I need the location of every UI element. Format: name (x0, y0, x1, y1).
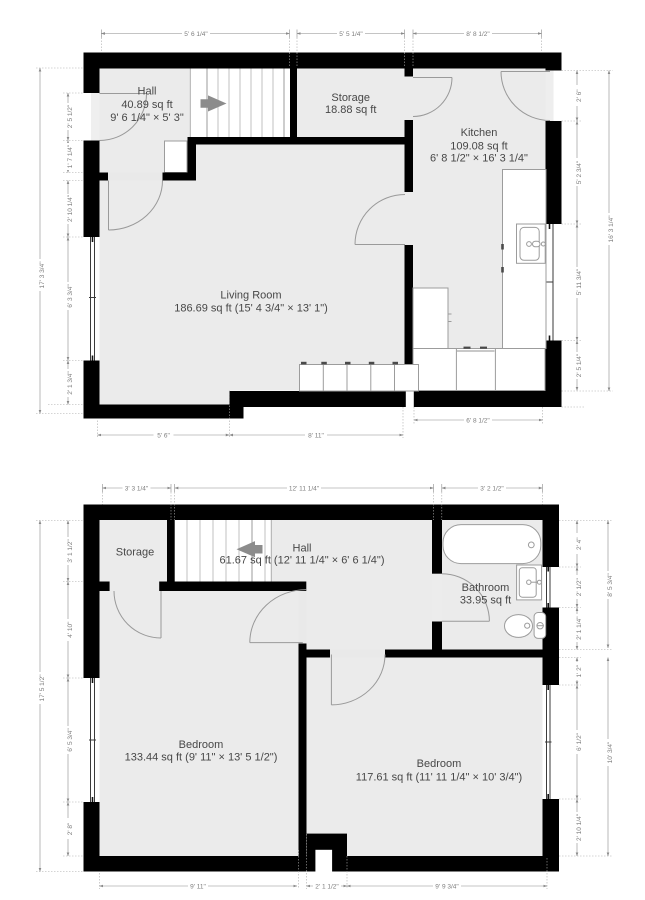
svg-text:2' 6": 2' 6" (576, 89, 583, 102)
svg-text:40.89 sq ft: 40.89 sq ft (121, 99, 172, 111)
svg-text:1' 7 1/4": 1' 7 1/4" (67, 144, 74, 168)
svg-text:Storage: Storage (116, 547, 155, 559)
svg-text:16' 3 1/4": 16' 3 1/4" (608, 215, 615, 243)
svg-text:133.44 sq ft (9' 11" × 13' 5 1: 133.44 sq ft (9' 11" × 13' 5 1/2") (125, 752, 278, 764)
svg-text:9' 11": 9' 11" (190, 884, 206, 891)
svg-text:33.95 sq ft: 33.95 sq ft (460, 594, 511, 606)
svg-text:17' 5 1/2": 17' 5 1/2" (39, 674, 46, 702)
svg-text:Kitchen: Kitchen (461, 127, 498, 139)
svg-text:Living Room: Living Room (220, 290, 281, 302)
svg-text:5' 6": 5' 6" (157, 433, 170, 440)
svg-text:Storage: Storage (331, 92, 370, 104)
svg-text:Bathroom: Bathroom (462, 582, 510, 594)
svg-text:8' 8 1/2": 8' 8 1/2" (466, 31, 490, 38)
svg-text:2' 10 1/4": 2' 10 1/4" (67, 194, 74, 222)
svg-text:6' 1/2": 6' 1/2" (576, 732, 583, 751)
svg-text:61.67 sq ft (12' 11 1/4" × 6': 61.67 sq ft (12' 11 1/4" × 6' 6 1/4") (220, 554, 385, 566)
svg-text:2' 1 1/4": 2' 1 1/4" (576, 616, 583, 640)
svg-text:12' 11 1/4": 12' 11 1/4" (289, 486, 320, 493)
svg-text:2' 10 1/4": 2' 10 1/4" (576, 813, 583, 841)
svg-text:2' 1 3/4": 2' 1 3/4" (67, 371, 74, 395)
svg-text:Bedroom: Bedroom (417, 758, 462, 770)
svg-text:6' 5 3/4": 6' 5 3/4" (67, 728, 74, 752)
svg-text:1' 2": 1' 2" (576, 664, 583, 677)
svg-text:2' 1 1/2": 2' 1 1/2" (315, 884, 339, 891)
svg-text:Hall: Hall (293, 542, 312, 554)
svg-text:3' 2 1/2": 3' 2 1/2" (480, 486, 504, 493)
svg-text:6' 8 1/2": 6' 8 1/2" (466, 418, 490, 425)
svg-text:5' 6 1/4": 5' 6 1/4" (184, 31, 208, 38)
svg-text:8' 11": 8' 11" (308, 433, 324, 440)
svg-text:8' 5 3/4": 8' 5 3/4" (607, 573, 614, 597)
svg-text:2' 5 1/4": 2' 5 1/4" (576, 353, 583, 377)
svg-text:10' 3/4": 10' 3/4" (607, 741, 614, 763)
svg-text:17' 3 3/4": 17' 3 3/4" (39, 261, 46, 289)
svg-text:2' 4": 2' 4" (576, 537, 583, 550)
svg-text:117.61 sq ft (11' 11 1/4" × 10: 117.61 sq ft (11' 11 1/4" × 10' 3/4") (356, 772, 522, 784)
svg-text:18.88 sq ft: 18.88 sq ft (325, 104, 376, 116)
svg-text:2' 5 1/2": 2' 5 1/2" (67, 104, 74, 128)
svg-text:2' 8": 2' 8" (67, 822, 74, 835)
svg-text:5' 11 3/4": 5' 11 3/4" (576, 268, 583, 295)
svg-text:6' 3 3/4": 6' 3 3/4" (67, 284, 74, 308)
svg-text:5' 2 3/4": 5' 2 3/4" (576, 160, 583, 184)
svg-text:186.69 sq ft (15' 4 3/4" × 13': 186.69 sq ft (15' 4 3/4" × 13' 1") (174, 302, 328, 314)
svg-text:2' 1/2": 2' 1/2" (576, 578, 583, 597)
svg-text:4' 10": 4' 10" (67, 621, 74, 638)
svg-text:6' 8 1/2" × 16' 3 1/4": 6' 8 1/2" × 16' 3 1/4" (430, 152, 528, 164)
svg-text:3' 3 1/4": 3' 3 1/4" (125, 486, 149, 493)
svg-text:Bedroom: Bedroom (179, 739, 224, 751)
svg-text:9' 6 1/4" × 5' 3": 9' 6 1/4" × 5' 3" (110, 112, 184, 124)
svg-text:3' 1 1/2": 3' 1 1/2" (67, 539, 74, 563)
svg-text:9' 9 3/4": 9' 9 3/4" (435, 884, 459, 891)
svg-text:Hall: Hall (138, 86, 157, 98)
svg-text:5' 5 1/4": 5' 5 1/4" (339, 31, 363, 38)
svg-text:109.08 sq ft: 109.08 sq ft (450, 141, 508, 153)
